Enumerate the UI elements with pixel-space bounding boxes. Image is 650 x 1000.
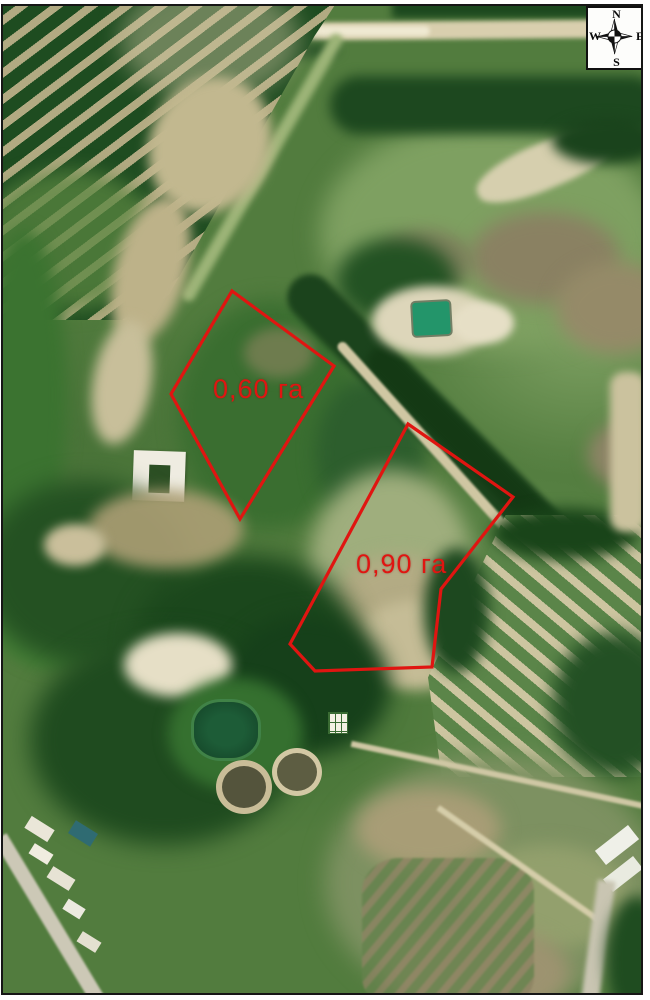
parcel-area-label-1: 0,60 га bbox=[213, 374, 304, 405]
parcel-outline-2 bbox=[290, 424, 513, 671]
compass-east-label: E bbox=[636, 30, 641, 42]
compass-rose-icon bbox=[594, 16, 635, 57]
parcel-area-label-2: 0,90 га bbox=[356, 549, 447, 580]
compass-box: N S W E bbox=[586, 6, 641, 70]
page: { "compass": { "north": "N", "east": "E"… bbox=[0, 0, 650, 1000]
parcel-annotation-layer bbox=[3, 6, 641, 993]
compass-south-label: S bbox=[613, 56, 620, 68]
satellite-map: 0,60 га 0,90 га N S W E bbox=[3, 6, 641, 993]
terrain-base: 0,60 га 0,90 га N S W E bbox=[3, 6, 641, 993]
parcel-outline-1 bbox=[171, 291, 334, 519]
